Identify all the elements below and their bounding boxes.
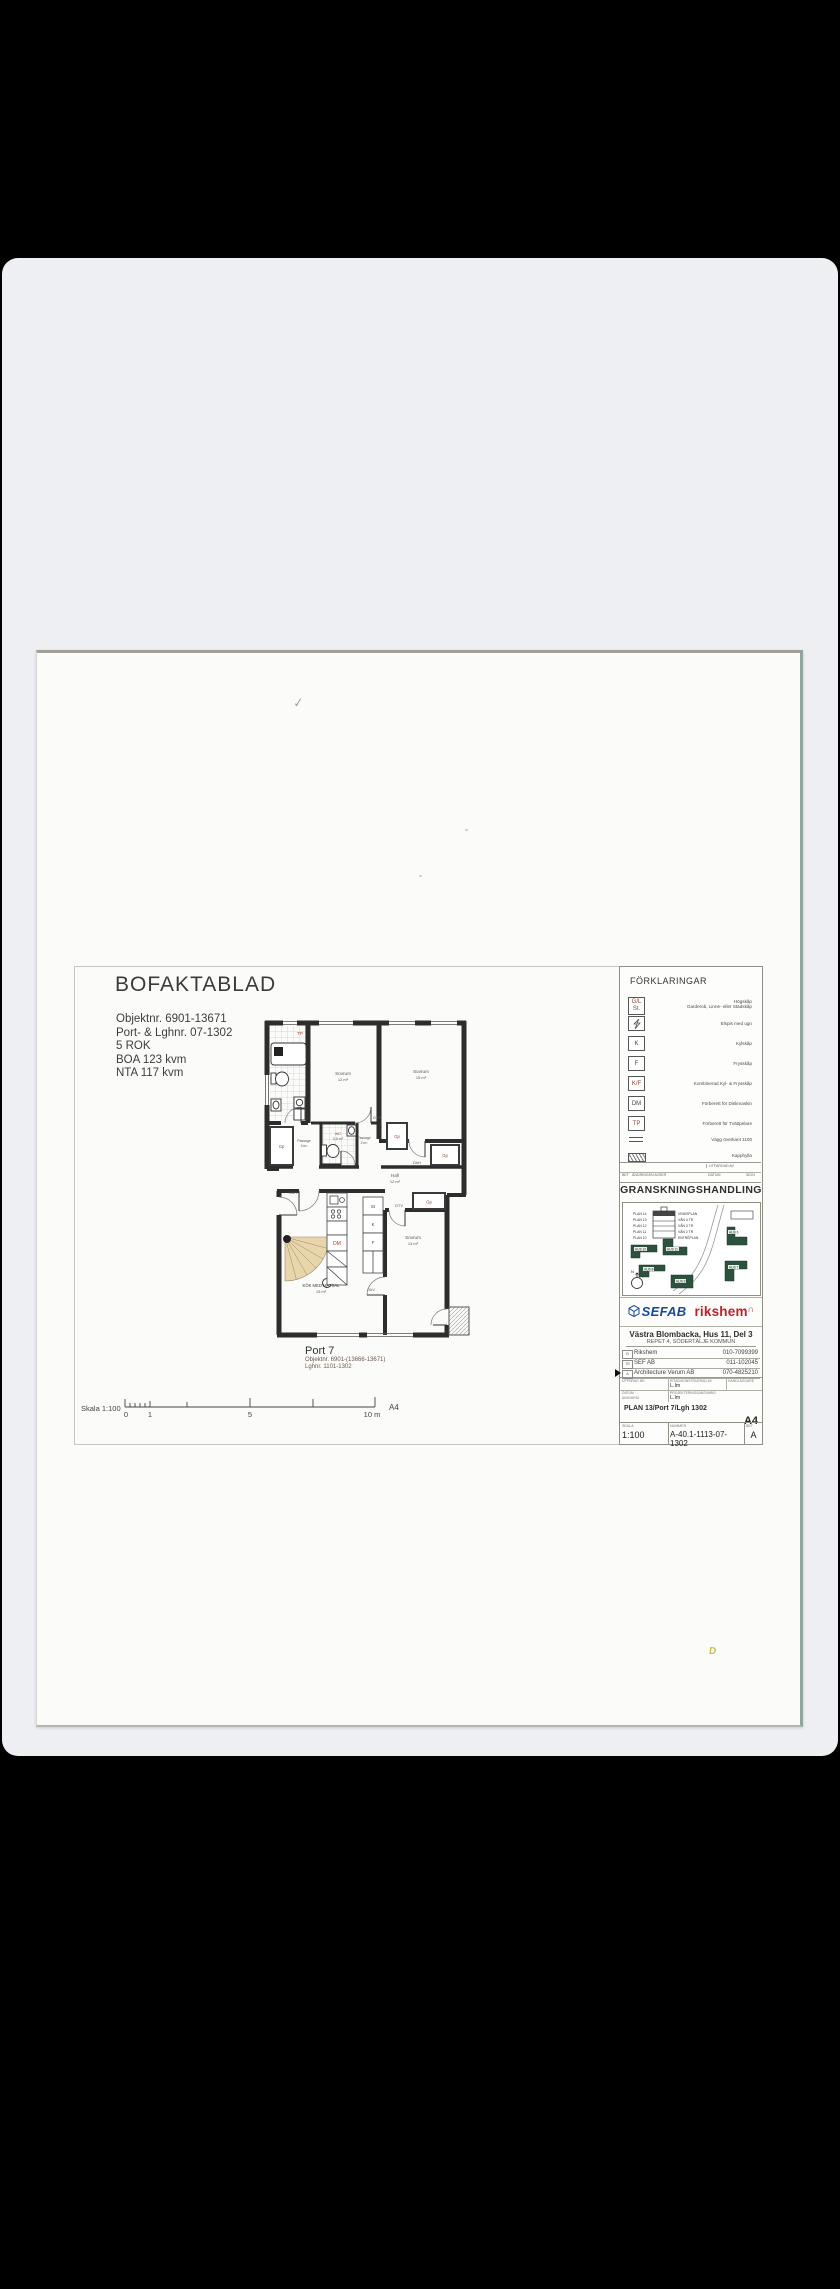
meta-label: HANDLÄGGARE bbox=[728, 1379, 761, 1383]
site-label: HUS 8 bbox=[644, 1267, 654, 1271]
tag-dtv-2: DTV bbox=[395, 1203, 403, 1208]
plan-level: PLAN 12 bbox=[633, 1224, 647, 1228]
marker-triangle-icon bbox=[615, 1369, 621, 1377]
port-title: Port 7 bbox=[305, 1345, 385, 1357]
tag-gp-3: Gp bbox=[442, 1153, 448, 1158]
port-objektnr: Objektnr. 6901-(13666-13671) bbox=[305, 1357, 385, 1364]
drawing-content-description: PLAN 13/Port 7/Lgh 1302 bbox=[624, 1405, 707, 1412]
legend-item-tvattpelare: TP Förberett för Tvättpelare bbox=[620, 1116, 762, 1134]
room-area-wc: 3,5 m² bbox=[333, 1137, 344, 1141]
room-area-sovrum3: 14 m² bbox=[408, 1241, 419, 1246]
apartment-info-block: Objektnr. 6901-13671 Port- & Lghnr. 07-1… bbox=[116, 1013, 232, 1081]
rikshem-roof-mark: ∩ bbox=[748, 1304, 755, 1314]
legend-label: Högskåp Garderob, Linne- eller Städskåp bbox=[650, 999, 752, 1010]
bet-cell-value: A bbox=[746, 1430, 761, 1440]
revision-bet: BET bbox=[622, 1173, 629, 1177]
legend-label: Frysskåp bbox=[650, 1061, 752, 1066]
stove-symbol bbox=[628, 1016, 645, 1031]
bet-cell-label: BET bbox=[746, 1424, 761, 1428]
plan-level: PLAN 11 bbox=[633, 1230, 646, 1234]
meta-row-2: DATUM ANSVARIG PROJEKTERINGSANSVARIG L.l… bbox=[620, 1390, 762, 1402]
legend-item-diskmaskin: DM Förberett för Diskmaskin bbox=[620, 1096, 762, 1114]
plan-desc: VINDSPLAN bbox=[678, 1212, 698, 1216]
viewer-background: ✓ BOFAKTABLAD Objektnr. 6901-13671 Port-… bbox=[2, 258, 838, 1756]
tag-dkh-2: DkH bbox=[289, 1190, 297, 1195]
meta-uppdrag: UPPDRAG NR bbox=[620, 1378, 669, 1390]
consultant-phone: 010-7099399 bbox=[723, 1350, 758, 1356]
title-block-meta: UPPDRAG NR RITAD/KONSTRUERAD AV L.lm HAN… bbox=[620, 1377, 762, 1402]
site-plan: PLAN 14 PLAN 13 PLAN 12 PLAN 11 PLAN 10 … bbox=[622, 1202, 761, 1296]
tag-dkv: DkV bbox=[367, 1287, 375, 1292]
port-block: Port 7 Objektnr. 6901-(13666-13671) Lghn… bbox=[305, 1345, 385, 1371]
meta-label: UPPDRAG NR bbox=[622, 1379, 668, 1383]
legend-item-vagg: Vägg överkant 1100 bbox=[620, 1134, 762, 1152]
meta-handlaggare: HANDLÄGGARE bbox=[726, 1378, 761, 1390]
cabinet-symbol-bottom: St. bbox=[633, 1006, 640, 1013]
room-area-passage1: 3 m² bbox=[301, 1144, 309, 1148]
scale-cell: SKALA 1:100 bbox=[620, 1423, 669, 1445]
granskningshandling-stamp: GRANSKNINGSHANDLING bbox=[620, 1184, 762, 1196]
room-label-passage1: Passage bbox=[297, 1139, 310, 1143]
ruler-tick-1: 1 bbox=[148, 1410, 152, 1419]
plan-level: PLAN 14 bbox=[633, 1212, 647, 1216]
balcony bbox=[449, 1307, 469, 1335]
site-label: HUS 10 bbox=[635, 1247, 646, 1251]
scale-ruler: 0 1 5 10 m bbox=[123, 1397, 393, 1423]
plan-desc: VÅN 4 TR bbox=[678, 1217, 694, 1222]
room-label-sovrum2: Sovrum bbox=[413, 1069, 429, 1074]
consultant-name: Rikshem bbox=[634, 1350, 657, 1356]
site-label: HUS 9 bbox=[676, 1279, 686, 1283]
sefab-hexagon-icon bbox=[628, 1305, 640, 1317]
sefab-logo: SEFAB bbox=[628, 1304, 687, 1319]
yellow-stain-artifact: D bbox=[708, 1646, 716, 1657]
legend-item-frys: F Frysskåp bbox=[620, 1056, 762, 1074]
scale-cell-value: 1:100 bbox=[622, 1430, 668, 1440]
tag-gp-1: Gp bbox=[279, 1144, 285, 1149]
north-label: N bbox=[631, 1269, 634, 1274]
meta-value: L.lm bbox=[670, 1395, 761, 1401]
site-label: HUS 6 bbox=[729, 1230, 739, 1234]
room-area-hall: 12 m² bbox=[390, 1179, 401, 1184]
lightning-icon bbox=[632, 1019, 642, 1029]
page-title: BOFAKTABLAD bbox=[115, 973, 276, 997]
cabinet-symbol-top: G/L bbox=[632, 999, 642, 1006]
tag-dkh-1: DkH bbox=[413, 1160, 421, 1165]
project-location: REPET 4, SÖDERTÄLJE KOMMUN bbox=[626, 1339, 756, 1347]
dishwasher-symbol: DM bbox=[628, 1096, 645, 1111]
number-cell-value: A-40.1-1113-07-1302 bbox=[670, 1430, 744, 1448]
bet-cell: BET A bbox=[744, 1423, 761, 1445]
meta-label: ANSVARIG bbox=[622, 1396, 668, 1400]
rikshem-wordmark: rikshem bbox=[694, 1304, 747, 1319]
legend-label: Kapphylla bbox=[650, 1153, 752, 1158]
logo-row: SEFAB rikshem∩ bbox=[620, 1297, 762, 1324]
building-section-icon bbox=[653, 1207, 675, 1238]
scan-speck bbox=[465, 829, 468, 831]
plan-desc: VÅN 2 TR bbox=[678, 1229, 694, 1234]
meta-datum: DATUM ANSVARIG bbox=[620, 1390, 669, 1402]
meta-projansvarig: PROJEKTERINGSANSVARIG L.lm bbox=[668, 1390, 761, 1402]
meta-ritad: RITAD/KONSTRUERAD AV L.lm bbox=[668, 1378, 727, 1390]
legend-header: FÖRKLARINGAR bbox=[630, 976, 707, 986]
room-label-hall: Hall bbox=[391, 1173, 399, 1178]
floor-plan: Sovrum 12 m² Sovrum 15 m² Sovrum 14 m² H… bbox=[263, 1019, 471, 1345]
room-label-passage2: Passage bbox=[357, 1136, 370, 1140]
scanned-paper: ✓ BOFAKTABLAD Objektnr. 6901-13671 Port-… bbox=[36, 650, 803, 1727]
paper-crease bbox=[37, 1561, 800, 1562]
meta-value: L.lm bbox=[670, 1383, 726, 1389]
title-block-bottom-row: SKALA 1:100 NUMMER A-40.1-1113-07-1302 B… bbox=[620, 1422, 762, 1445]
consultant-name: SEF AB bbox=[634, 1360, 655, 1366]
format-note: A4 bbox=[389, 1403, 399, 1412]
revision-table: UTFÄRDAD AV BET ÄNDRINGEN AVSER DATUM SI… bbox=[620, 1162, 761, 1183]
cabinet-symbol: G/L St. bbox=[628, 997, 645, 1015]
revision-andringen: ÄNDRINGEN AVSER bbox=[632, 1173, 666, 1177]
low-wall-symbol bbox=[629, 1137, 643, 1145]
sefab-wordmark: SEFAB bbox=[642, 1304, 687, 1319]
tag-dm: DM bbox=[333, 1241, 341, 1247]
ruler-tick-0: 0 bbox=[124, 1410, 128, 1419]
info-objektnr: Objektnr. 6901-13671 bbox=[116, 1013, 232, 1027]
ruler-tick-10: 10 m bbox=[364, 1410, 381, 1419]
room-area-sovrum1: 12 m² bbox=[338, 1077, 349, 1082]
info-boa: BOA 123 kvm bbox=[116, 1054, 232, 1068]
tag-gp-2: Gp bbox=[394, 1134, 400, 1139]
room-area-passage2: 2 m² bbox=[361, 1141, 369, 1145]
legend-item-kylfrys: K/F Kombinerad Kyl- & Frysskåp bbox=[620, 1076, 762, 1094]
room-label-kok: KÖK MED MATSAL bbox=[303, 1283, 341, 1288]
legend-label-line2: Garderob, Linne- eller Städskåp bbox=[650, 1004, 752, 1009]
legend-label: Elspis med ugn bbox=[650, 1021, 752, 1026]
legend-label: Vägg överkant 1100 bbox=[650, 1137, 752, 1142]
fridge-symbol: K bbox=[628, 1036, 645, 1051]
consultant-name: Architecture Verum AB bbox=[634, 1370, 694, 1376]
site-building-outline bbox=[731, 1211, 753, 1219]
room-label-sovrum3: Sovrum bbox=[405, 1235, 421, 1240]
spiral-stair bbox=[283, 1235, 332, 1288]
number-cell: NUMMER A-40.1-1113-07-1302 bbox=[668, 1423, 745, 1445]
floor-plan-drawing: Sovrum 12 m² Sovrum 15 m² Sovrum 14 m² H… bbox=[263, 1019, 471, 1345]
tag-f: F bbox=[372, 1240, 375, 1245]
hat-shelf-symbol bbox=[628, 1153, 646, 1162]
plan-level-list: PLAN 14 PLAN 13 PLAN 12 PLAN 11 PLAN 10 bbox=[633, 1212, 647, 1240]
room-label-sovrum1: Sovrum bbox=[335, 1071, 351, 1076]
tag-dtv-1: DTV bbox=[373, 1115, 381, 1120]
room-label-wc: WC bbox=[335, 1132, 342, 1136]
info-rok: 5 ROK bbox=[116, 1040, 232, 1054]
legend-item-elspis: Elspis med ugn bbox=[620, 1016, 762, 1034]
legend-item-kyl: K Kylskåp bbox=[620, 1036, 762, 1054]
plan-level-descriptions: VINDSPLAN VÅN 4 TR VÅN 3 TR VÅN 2 TR ENT… bbox=[678, 1212, 699, 1240]
plan-level: PLAN 10 bbox=[633, 1236, 647, 1240]
legend-label: Förberett för Diskmaskin bbox=[650, 1101, 752, 1106]
meta-label: DATUM bbox=[622, 1391, 668, 1395]
consultant-phone: 070-4825210 bbox=[723, 1370, 758, 1376]
scale-cell-label: SKALA bbox=[622, 1424, 668, 1428]
revision-datum: DATUM bbox=[708, 1173, 721, 1177]
tag-k: K bbox=[372, 1222, 375, 1227]
port-lghnr: Lghnr. 1101-1302 bbox=[305, 1364, 385, 1371]
site-plan-drawing: PLAN 14 PLAN 13 PLAN 12 PLAN 11 PLAN 10 … bbox=[623, 1203, 760, 1295]
title-block-column: FÖRKLARINGAR G/L St. Högskåp Garderob, L… bbox=[619, 966, 763, 1445]
info-nta: NTA 117 kvm bbox=[116, 1067, 232, 1081]
legend-label: Förberett för Tvättpelare bbox=[650, 1121, 752, 1126]
tag-gp-4: Gp bbox=[426, 1200, 432, 1205]
site-label: HUS 7 bbox=[729, 1265, 739, 1269]
consultant-phone: 011-102045 bbox=[726, 1360, 758, 1366]
rikshem-logo: rikshem∩ bbox=[694, 1304, 754, 1319]
scan-speck bbox=[419, 875, 422, 877]
tag-tp: TP bbox=[297, 1031, 303, 1036]
info-lghnr: Port- & Lghnr. 07-1302 bbox=[116, 1027, 232, 1041]
legend-label: Kombinerad Kyl- & Frysskåp bbox=[650, 1081, 752, 1086]
legend-item-hogskap: G/L St. Högskåp Garderob, Linne- eller S… bbox=[620, 997, 762, 1015]
fridge-freezer-symbol: K/F bbox=[628, 1076, 645, 1091]
site-label: HUS 11 bbox=[667, 1247, 678, 1251]
project-name: Västra Blombacka, Hus 11, Del 3 bbox=[620, 1326, 762, 1339]
revision-row-headers: BET ÄNDRINGEN AVSER DATUM SIGN bbox=[620, 1172, 761, 1181]
revision-sign: SIGN bbox=[746, 1173, 755, 1177]
scale-label: Skala 1:100 bbox=[81, 1404, 121, 1413]
legend-label: Kylskåp bbox=[650, 1041, 752, 1046]
ruler-tick-5: 5 bbox=[248, 1410, 252, 1419]
revision-utfardad: UTFÄRDAD AV bbox=[706, 1164, 734, 1168]
number-cell-label: NUMMER bbox=[670, 1424, 744, 1428]
pen-checkmark-artifact: ✓ bbox=[292, 694, 305, 711]
room-area-sovrum2: 15 m² bbox=[416, 1075, 427, 1080]
freezer-symbol: F bbox=[628, 1056, 645, 1071]
laundry-symbol: TP bbox=[628, 1116, 645, 1131]
plan-desc: VÅN 3 TR bbox=[678, 1223, 694, 1228]
plan-level: PLAN 13 bbox=[633, 1218, 647, 1222]
plan-desc: ENTRÉPLAN bbox=[678, 1235, 699, 1240]
room-area-kok: 15 m² bbox=[316, 1289, 327, 1294]
kitchen-cabinets bbox=[327, 1193, 347, 1285]
